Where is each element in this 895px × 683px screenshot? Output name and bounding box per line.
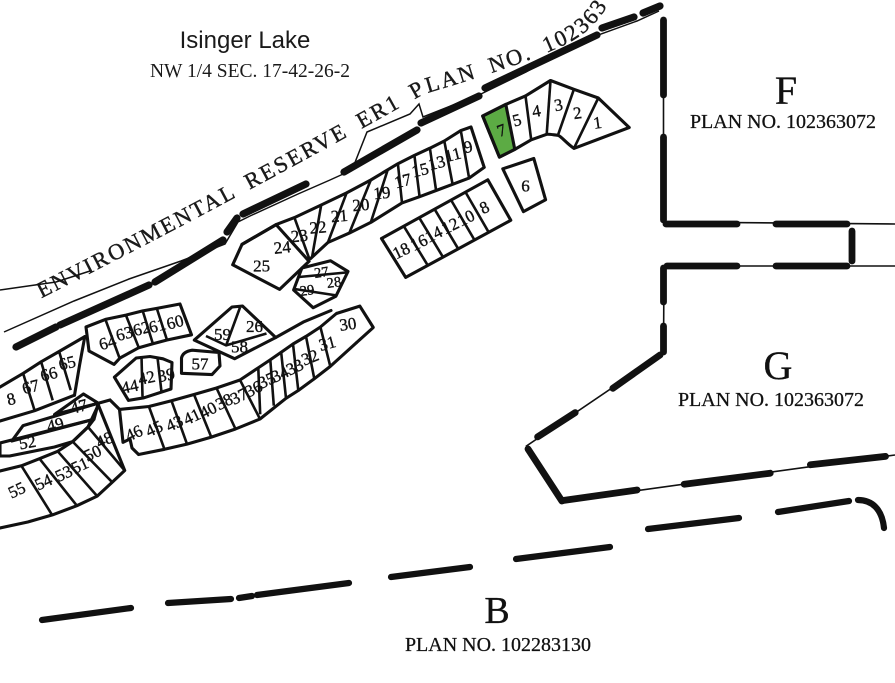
svg-text:57: 57 — [192, 355, 210, 374]
svg-text:PLAN NO. 102283130: PLAN NO. 102283130 — [405, 634, 591, 656]
svg-text:G: G — [764, 343, 793, 388]
svg-text:Isinger Lake: Isinger Lake — [180, 27, 311, 54]
svg-text:23: 23 — [290, 226, 309, 247]
svg-text:28: 28 — [326, 274, 343, 292]
svg-text:19: 19 — [373, 183, 392, 203]
svg-text:58: 58 — [231, 338, 248, 357]
svg-text:26: 26 — [246, 317, 263, 336]
svg-text:F: F — [775, 68, 797, 113]
svg-text:B: B — [484, 590, 509, 632]
svg-text:PLAN NO. 102363072: PLAN NO. 102363072 — [678, 389, 864, 411]
svg-text:59: 59 — [214, 325, 231, 344]
svg-text:NW 1/4 SEC. 17-42-26-2: NW 1/4 SEC. 17-42-26-2 — [150, 61, 350, 82]
svg-text:21: 21 — [330, 206, 349, 226]
svg-text:29: 29 — [299, 282, 316, 300]
svg-text:PLAN NO. 102363072: PLAN NO. 102363072 — [690, 111, 876, 133]
svg-text:30: 30 — [338, 314, 357, 335]
svg-text:6: 6 — [521, 177, 530, 196]
svg-text:52: 52 — [17, 432, 37, 454]
svg-text:25: 25 — [253, 257, 270, 276]
svg-text:20: 20 — [352, 195, 371, 215]
svg-text:22: 22 — [309, 217, 328, 237]
svg-text:24: 24 — [273, 237, 292, 258]
